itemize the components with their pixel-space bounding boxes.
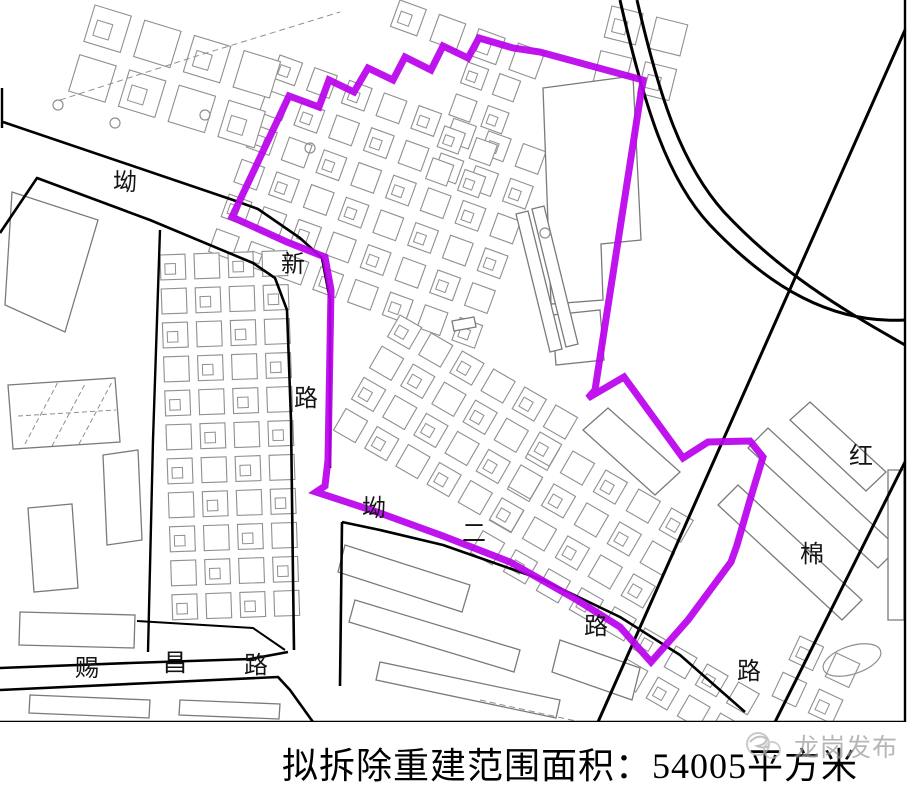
map-canvas: 坳新路坳二路赐昌路红棉路 bbox=[0, 0, 912, 722]
building bbox=[230, 320, 256, 346]
building bbox=[481, 106, 509, 134]
road-label: 坳 bbox=[113, 169, 137, 196]
building bbox=[200, 423, 226, 449]
building bbox=[164, 356, 190, 382]
building bbox=[370, 346, 404, 380]
building bbox=[202, 491, 228, 517]
road-label: 棉 bbox=[800, 541, 824, 568]
road-label: 路 bbox=[244, 652, 268, 679]
building bbox=[419, 333, 453, 367]
building bbox=[349, 600, 520, 672]
watermark-text: 龙岗发布 bbox=[794, 728, 898, 764]
building bbox=[198, 355, 224, 381]
building bbox=[269, 172, 300, 203]
building bbox=[583, 408, 680, 495]
building bbox=[825, 653, 860, 688]
building bbox=[348, 279, 379, 310]
building bbox=[172, 594, 198, 620]
building bbox=[476, 449, 510, 483]
road-label: 二 bbox=[462, 521, 486, 547]
watermark: 龙岗发布 bbox=[742, 726, 898, 766]
building bbox=[360, 245, 391, 276]
building bbox=[445, 431, 479, 465]
building bbox=[388, 315, 422, 349]
road-label: 昌 bbox=[163, 651, 187, 677]
building bbox=[365, 427, 399, 461]
building bbox=[161, 288, 187, 314]
building bbox=[237, 524, 263, 550]
road-label: 红 bbox=[849, 443, 873, 470]
building bbox=[395, 257, 426, 288]
building bbox=[351, 163, 382, 194]
building bbox=[677, 695, 710, 722]
building bbox=[69, 55, 116, 102]
building bbox=[167, 458, 193, 484]
building bbox=[162, 322, 188, 348]
building bbox=[338, 197, 369, 228]
building bbox=[481, 369, 515, 403]
building bbox=[593, 470, 627, 504]
building bbox=[789, 636, 824, 671]
building bbox=[5, 192, 98, 332]
building bbox=[273, 556, 299, 582]
building bbox=[396, 445, 430, 479]
building bbox=[183, 35, 230, 82]
building bbox=[19, 612, 135, 648]
building bbox=[492, 74, 520, 102]
building bbox=[352, 377, 386, 411]
building bbox=[386, 175, 417, 206]
building bbox=[363, 128, 394, 159]
building bbox=[432, 382, 466, 416]
building bbox=[463, 400, 497, 434]
building bbox=[607, 522, 641, 556]
building bbox=[103, 450, 142, 545]
building bbox=[709, 713, 742, 722]
building bbox=[376, 662, 560, 718]
road-label: 路 bbox=[294, 385, 318, 412]
building bbox=[205, 559, 231, 585]
building bbox=[449, 94, 477, 122]
building bbox=[494, 418, 528, 452]
building bbox=[160, 254, 186, 280]
parcel-line-west bbox=[148, 230, 160, 652]
building bbox=[772, 672, 807, 707]
building bbox=[503, 178, 534, 209]
building bbox=[232, 354, 258, 380]
road-label: 路 bbox=[737, 658, 761, 685]
building bbox=[234, 422, 260, 448]
building bbox=[458, 481, 492, 515]
building bbox=[509, 465, 543, 499]
building bbox=[430, 270, 461, 301]
building bbox=[414, 413, 448, 447]
building bbox=[398, 140, 429, 171]
building bbox=[649, 17, 688, 56]
building bbox=[206, 593, 232, 619]
diagonal-road-east-1 bbox=[598, 30, 905, 722]
building bbox=[442, 235, 473, 266]
building bbox=[229, 286, 255, 312]
building bbox=[203, 525, 229, 551]
building bbox=[168, 85, 215, 132]
building bbox=[543, 405, 577, 439]
building bbox=[325, 232, 356, 263]
road-label: 新 bbox=[281, 251, 305, 278]
building bbox=[427, 463, 461, 497]
planning-map-figure: 坳新路坳二路赐昌路红棉路 拟拆除重建范围面积：54005平方米 龙岗发布 bbox=[0, 0, 912, 786]
building bbox=[235, 456, 261, 482]
building bbox=[166, 424, 192, 450]
building-cluster bbox=[209, 55, 546, 348]
building bbox=[165, 390, 191, 416]
building bbox=[465, 283, 496, 314]
building bbox=[28, 504, 78, 592]
building bbox=[490, 498, 524, 532]
building bbox=[588, 555, 622, 589]
building bbox=[477, 248, 508, 279]
building bbox=[552, 640, 640, 700]
building bbox=[29, 695, 150, 718]
building bbox=[490, 213, 521, 244]
block-outline-cichang bbox=[137, 621, 285, 650]
building bbox=[179, 700, 280, 719]
building bbox=[303, 185, 334, 216]
building bbox=[236, 490, 262, 516]
manhole-circle bbox=[53, 100, 63, 110]
building bbox=[233, 388, 259, 414]
building bbox=[420, 188, 451, 219]
building bbox=[555, 536, 589, 570]
building bbox=[274, 590, 300, 616]
building bbox=[408, 223, 439, 254]
manhole-circle bbox=[110, 118, 120, 128]
building bbox=[171, 560, 197, 586]
building bbox=[664, 646, 697, 679]
building bbox=[541, 484, 575, 518]
building bbox=[316, 150, 347, 181]
building bbox=[574, 503, 608, 537]
building bbox=[118, 70, 165, 117]
building-cluster bbox=[772, 636, 860, 722]
building bbox=[169, 526, 195, 552]
building bbox=[195, 287, 221, 313]
building bbox=[228, 252, 254, 278]
building bbox=[329, 115, 360, 146]
building bbox=[390, 0, 426, 36]
building bbox=[512, 387, 546, 421]
building bbox=[194, 253, 220, 279]
building bbox=[8, 378, 120, 449]
building bbox=[808, 689, 843, 722]
building bbox=[659, 508, 693, 542]
road-label: 路 bbox=[584, 613, 608, 640]
building bbox=[401, 364, 435, 398]
road-label: 赐 bbox=[75, 656, 99, 682]
building bbox=[233, 51, 280, 98]
building bbox=[460, 62, 488, 90]
building bbox=[84, 5, 131, 52]
building bbox=[417, 305, 448, 336]
building bbox=[515, 144, 546, 175]
building bbox=[646, 677, 679, 710]
building-cluster bbox=[160, 251, 300, 620]
building bbox=[411, 106, 442, 137]
block-boundary-vertical bbox=[340, 522, 342, 686]
building-cluster bbox=[69, 5, 281, 148]
building bbox=[560, 451, 594, 485]
building bbox=[450, 351, 484, 385]
building bbox=[239, 558, 265, 584]
building bbox=[376, 93, 407, 124]
dove-logo-icon bbox=[742, 726, 794, 766]
building bbox=[522, 517, 556, 551]
building bbox=[134, 20, 181, 67]
building bbox=[383, 395, 417, 429]
building bbox=[201, 457, 227, 483]
building bbox=[199, 389, 225, 415]
building bbox=[240, 592, 266, 618]
building bbox=[196, 321, 222, 347]
building bbox=[168, 492, 194, 518]
road-label: 坳 bbox=[362, 495, 386, 522]
building bbox=[455, 200, 486, 231]
building bbox=[334, 409, 368, 443]
building bbox=[373, 210, 404, 241]
